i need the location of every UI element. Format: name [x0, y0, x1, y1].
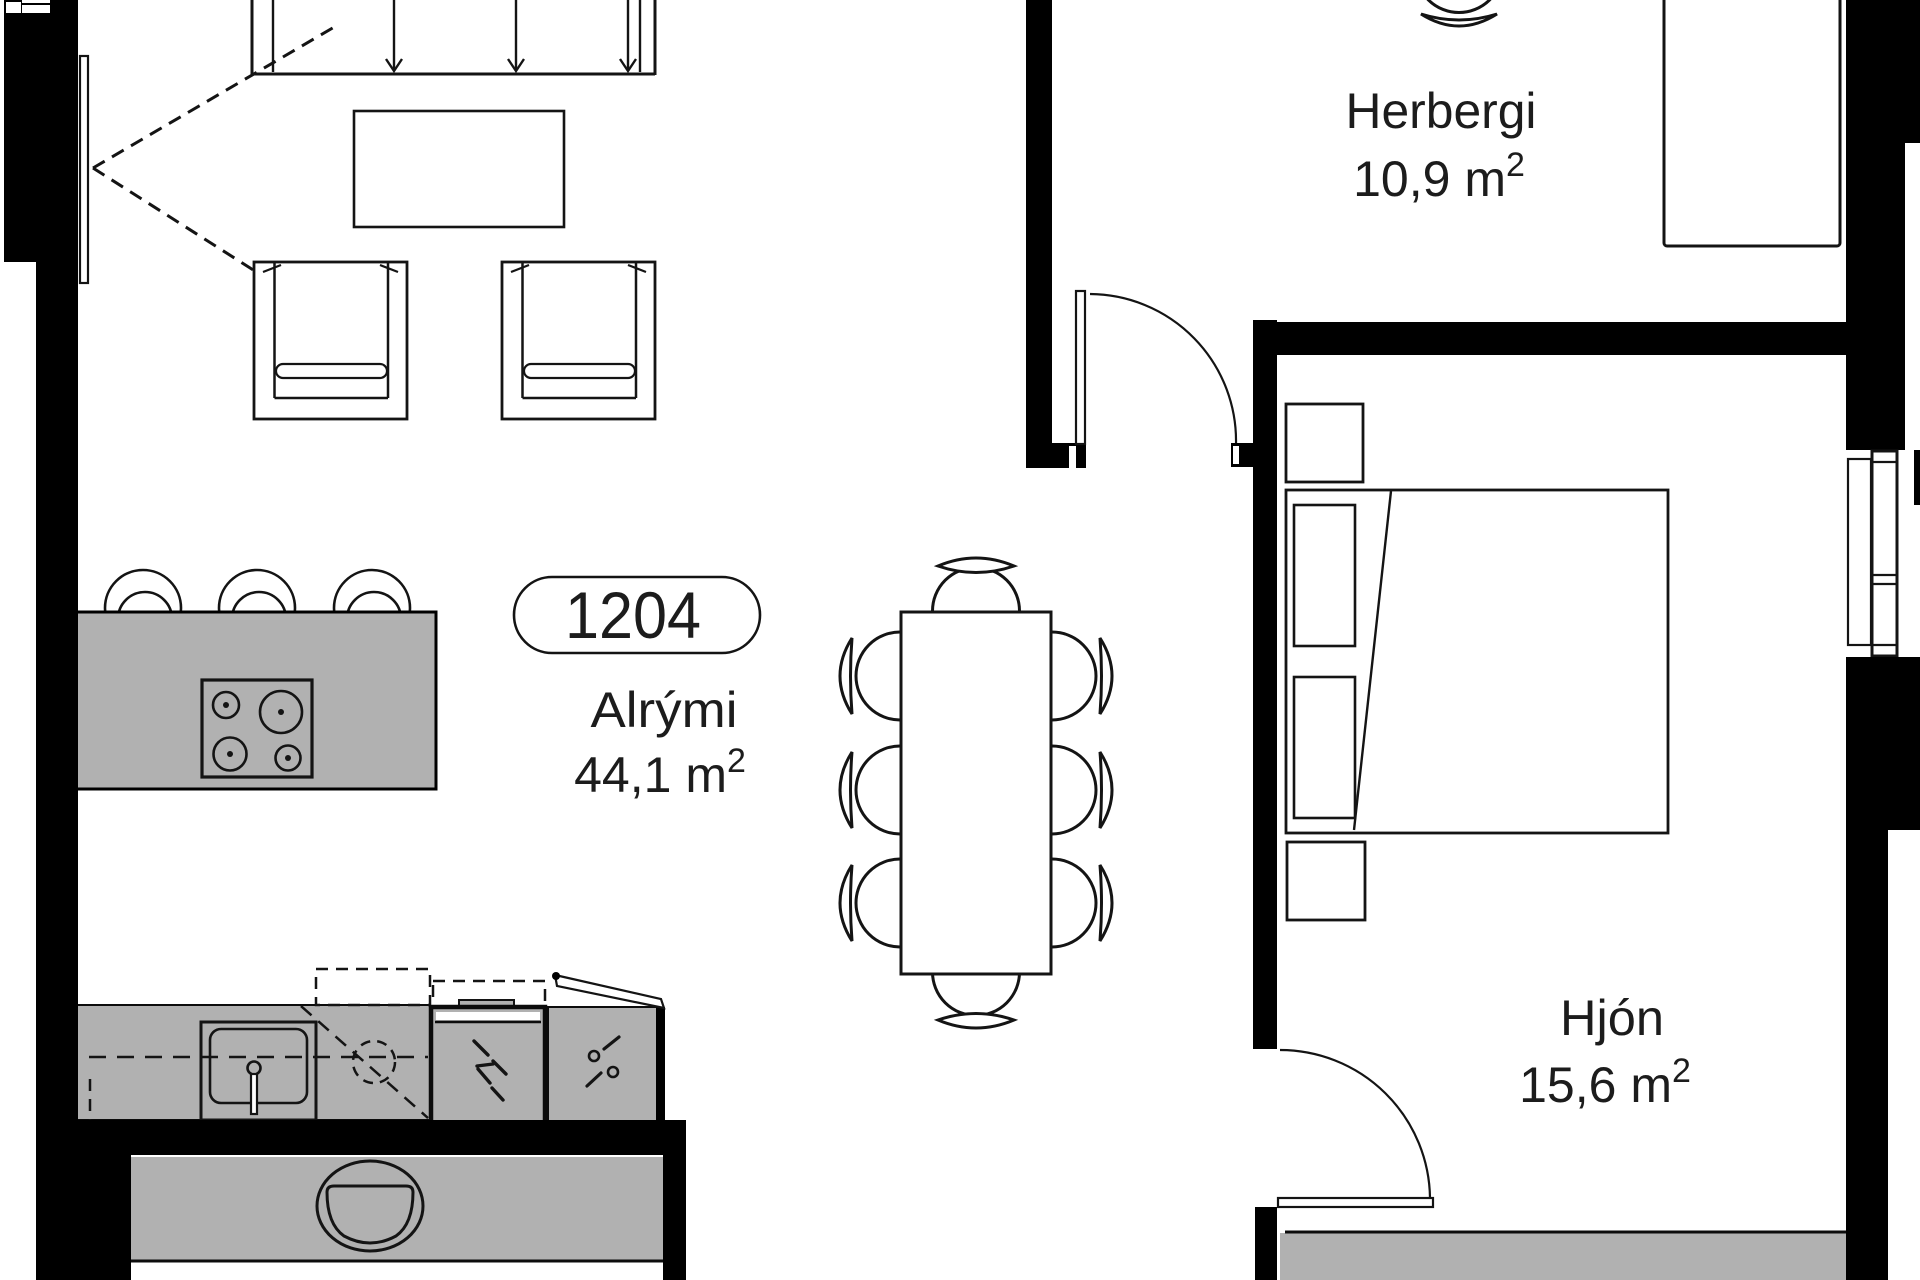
svg-text:10,9 m2: 10,9 m2	[1353, 146, 1525, 207]
svg-text:Alrými: Alrými	[591, 682, 738, 738]
svg-text:15,6 m2: 15,6 m2	[1519, 1052, 1691, 1113]
svg-text:Hjón: Hjón	[1560, 990, 1664, 1046]
svg-text:44,1 m2: 44,1 m2	[574, 742, 746, 803]
svg-text:Herbergi: Herbergi	[1346, 83, 1537, 139]
svg-text:1204: 1204	[565, 578, 701, 652]
